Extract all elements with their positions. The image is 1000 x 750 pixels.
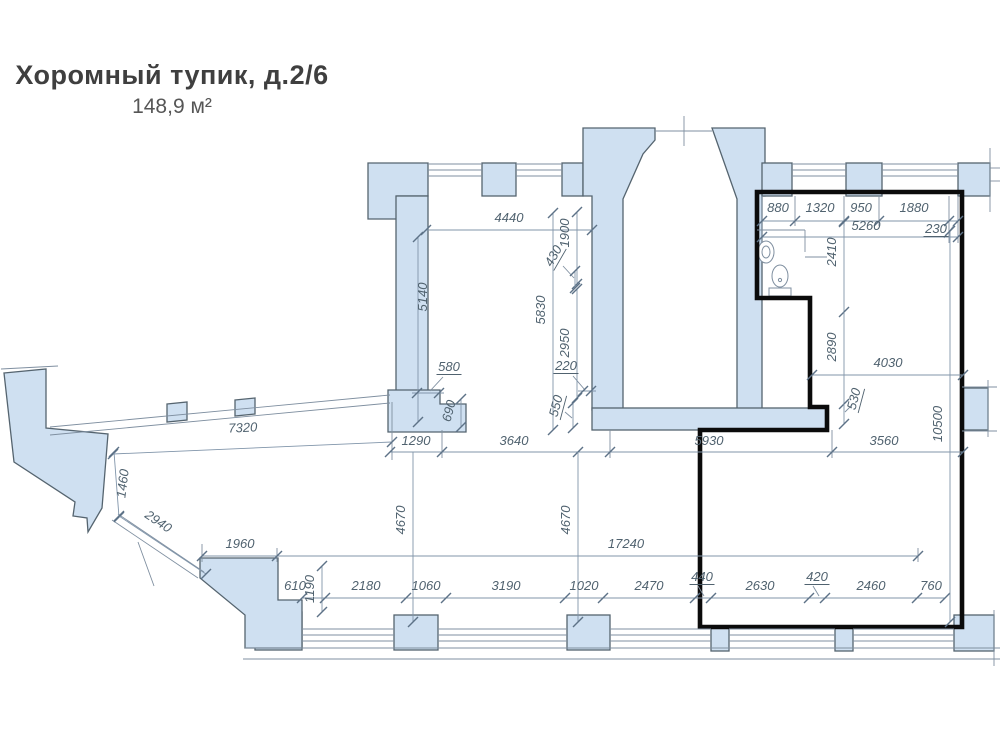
floor-plan-page: Хоромный тупик, д.2/6 148,9 м² — [0, 0, 1000, 750]
dimension-label: 5830 — [533, 295, 548, 325]
dimension-value: 950 — [850, 200, 872, 215]
wall-left-arm — [4, 369, 108, 532]
dimension-label: 3640 — [500, 433, 530, 448]
dimension-label: 610 — [284, 578, 306, 593]
dimension-value: 2890 — [824, 332, 839, 363]
wall-pier — [394, 615, 438, 650]
dimension-value: 230 — [924, 221, 947, 236]
dimension-label: 760 — [920, 578, 942, 593]
dimension-value: 2460 — [856, 578, 887, 593]
thin-line — [138, 542, 154, 586]
floor-plan-drawing: 4440514019004305830295022058069055012903… — [0, 0, 1000, 750]
dimension-label: 1020 — [570, 578, 600, 593]
wall-shaft-left — [583, 128, 655, 410]
dimension-value: 2940 — [142, 506, 176, 536]
bathroom-fixtures — [758, 241, 791, 296]
thin-line — [50, 403, 390, 435]
dimension-value: 1060 — [412, 578, 442, 593]
sink-basin-icon — [762, 246, 770, 258]
thin-line — [813, 586, 819, 596]
dimension-value: 580 — [438, 359, 460, 374]
dimension-value: 610 — [284, 578, 306, 593]
toilet-tank-icon — [769, 288, 791, 296]
dimension-value: 1960 — [226, 536, 256, 551]
dimension-label: 440 — [690, 569, 715, 585]
dimension-label: 580 — [437, 359, 462, 375]
dimension-label: 550 — [545, 392, 566, 420]
thin-line — [573, 376, 585, 390]
thin-line — [563, 266, 574, 278]
dimension-label: 1460 — [113, 467, 132, 498]
dimension-value: 4670 — [393, 505, 408, 535]
walls-layer — [4, 128, 994, 651]
dimension-value: 530 — [844, 386, 864, 412]
dimension-label: 3560 — [870, 433, 900, 448]
dimension-label: 2470 — [634, 578, 665, 593]
thin-line — [430, 377, 443, 391]
wall-pier — [482, 163, 516, 196]
thin-line — [565, 412, 572, 418]
dimension-value: 2470 — [634, 578, 665, 593]
dimension-value: 5930 — [695, 433, 725, 448]
dimension-label: 2180 — [351, 578, 382, 593]
dimension-value: 5830 — [533, 295, 548, 325]
wall-pier — [962, 388, 988, 430]
dimension-label: 220 — [554, 358, 579, 374]
dimension-value: 440 — [691, 569, 713, 584]
wall-pier-small — [235, 398, 255, 416]
dimension-value: 17240 — [608, 536, 645, 551]
toilet-bowl-icon — [772, 265, 788, 287]
dimension-value: 4670 — [558, 505, 573, 535]
dimension-label: 1900 — [557, 218, 572, 248]
dimension-value: 760 — [920, 578, 942, 593]
thin-line — [50, 395, 390, 427]
dimension-value: 10500 — [930, 405, 945, 442]
dimension-value: 5140 — [415, 282, 430, 312]
dimension-label: 420 — [805, 569, 830, 585]
dimension-label: 10500 — [930, 405, 945, 442]
dimension-label: 880 — [767, 200, 789, 215]
dimension-value: 3640 — [500, 433, 530, 448]
dimension-value: 1020 — [570, 578, 600, 593]
dimension-label: 1290 — [402, 433, 432, 448]
toilet-drain-icon — [778, 278, 781, 281]
dimension-value: 2410 — [824, 237, 839, 268]
dimension-label: 17240 — [608, 536, 645, 551]
dimension-label: 2890 — [824, 332, 839, 363]
dimension-label: 2630 — [745, 578, 776, 593]
wall-pier — [711, 627, 729, 651]
thin-line — [112, 520, 198, 578]
dimension-line — [113, 442, 392, 454]
dimension-value: 4440 — [495, 210, 525, 225]
dimension-value: 2630 — [745, 578, 776, 593]
dimension-label: 950 — [850, 200, 872, 215]
dimension-value: 2950 — [557, 328, 572, 359]
dimension-label: 5260 — [852, 218, 882, 233]
thin-line — [1, 366, 58, 369]
dimension-label: 5930 — [695, 433, 725, 448]
dimension-label: 530 — [843, 385, 864, 413]
dimension-value: 2180 — [351, 578, 382, 593]
dimension-label: 2460 — [856, 578, 887, 593]
dimension-value: 1900 — [557, 218, 572, 248]
dimension-value: 1880 — [900, 200, 930, 215]
dimension-value: 1290 — [402, 433, 432, 448]
dimension-label: 1880 — [900, 200, 930, 215]
dimension-label: 5140 — [415, 282, 430, 312]
dimension-label: 4440 — [495, 210, 525, 225]
dimension-value: 3560 — [870, 433, 900, 448]
wall-inner-band — [592, 408, 827, 430]
wall-corridor — [200, 558, 302, 648]
dimension-label: 1320 — [806, 200, 836, 215]
dimension-label: 4670 — [558, 505, 573, 535]
dimension-label: 2950 — [557, 328, 572, 359]
dimension-label: 7320 — [228, 419, 258, 435]
wall-pier — [567, 615, 610, 650]
dimension-label: 1960 — [226, 536, 256, 551]
dimension-value: 1460 — [113, 467, 132, 498]
dimension-label: 1060 — [412, 578, 442, 593]
dimension-value: 4030 — [874, 355, 904, 370]
dimension-value: 420 — [806, 569, 828, 584]
dimension-value: 7320 — [228, 419, 258, 435]
dimension-label: 4030 — [874, 355, 904, 370]
dimension-label: 2940 — [142, 506, 176, 536]
wall-pier — [562, 163, 583, 196]
dimension-value: 3190 — [492, 578, 522, 593]
dimension-label: 3190 — [492, 578, 522, 593]
dimension-label: 2410 — [824, 237, 839, 268]
wall-pier — [835, 627, 853, 651]
dimension-value: 220 — [554, 358, 577, 373]
wall-pier-small — [167, 402, 187, 422]
dimension-value: 5260 — [852, 218, 882, 233]
dimension-label: 4670 — [393, 505, 408, 535]
dimension-label: 230 — [924, 221, 949, 237]
dimension-value: 1320 — [806, 200, 836, 215]
dimension-value: 880 — [767, 200, 789, 215]
dimension-value: 550 — [546, 393, 566, 419]
